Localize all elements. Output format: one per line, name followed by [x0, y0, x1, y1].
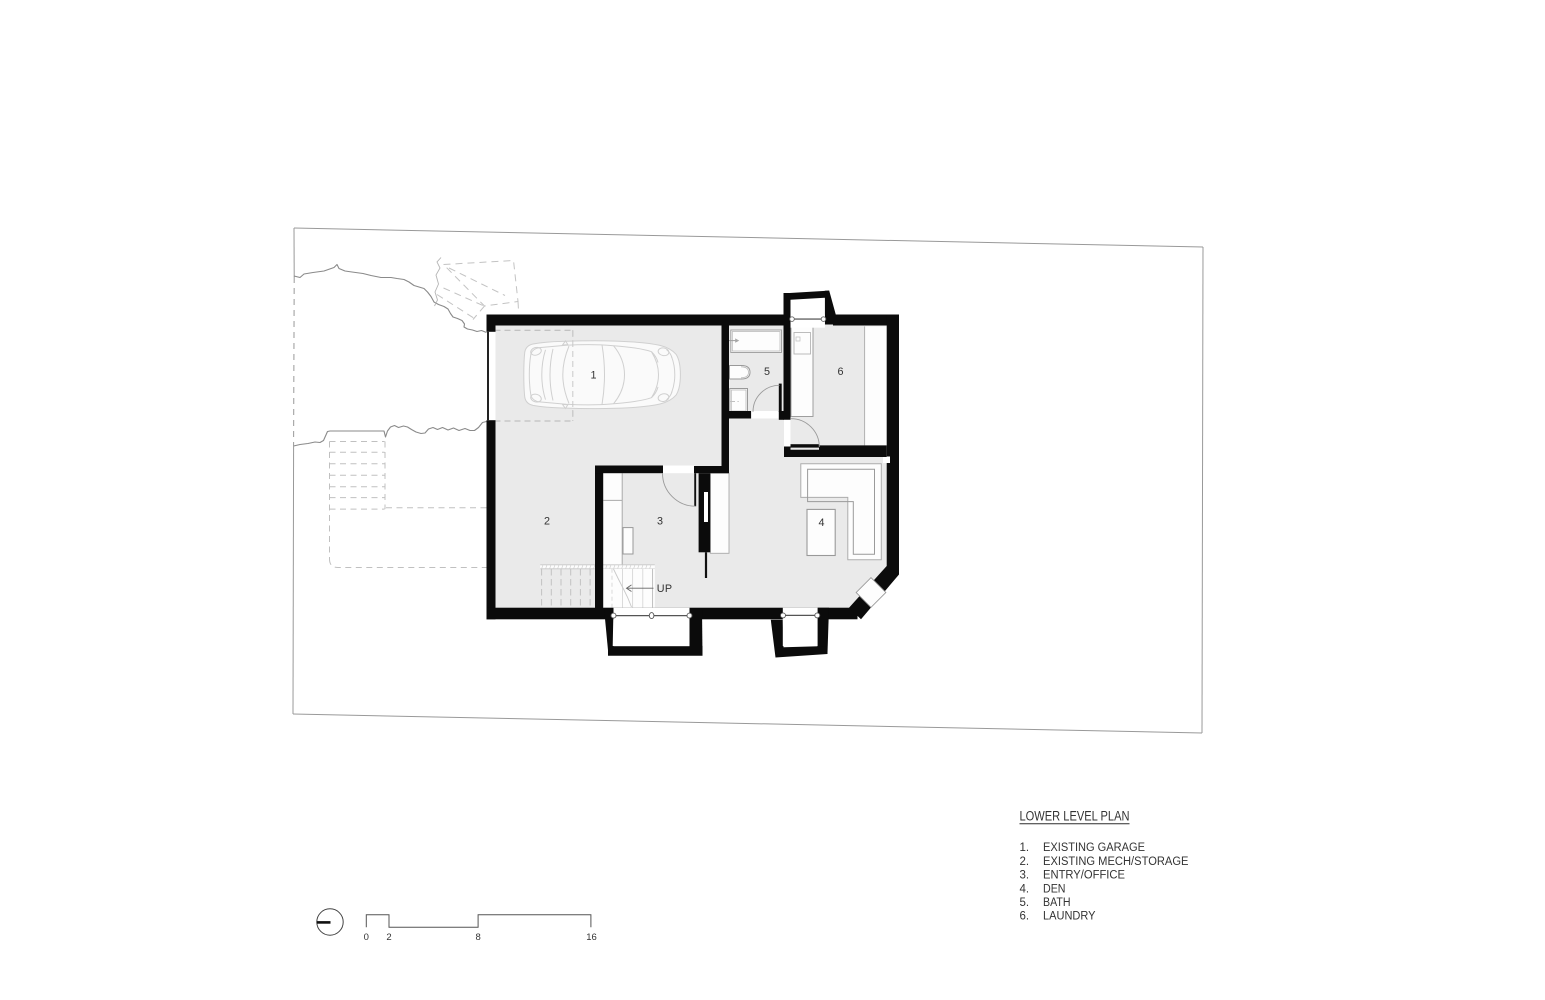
svg-text:ENTRY/OFFICE: ENTRY/OFFICE [1043, 870, 1125, 882]
svg-text:EXISTING MECH/STORAGE: EXISTING MECH/STORAGE [1043, 856, 1189, 868]
svg-text:3: 3 [657, 515, 663, 527]
svg-text:6.: 6. [1020, 911, 1030, 923]
svg-text:5.: 5. [1020, 897, 1030, 909]
svg-text:LAUNDRY: LAUNDRY [1043, 911, 1096, 923]
svg-text:8: 8 [475, 932, 480, 943]
svg-text:1.: 1. [1020, 842, 1030, 854]
svg-text:2: 2 [544, 515, 550, 527]
svg-text:4: 4 [818, 517, 824, 529]
svg-text:5: 5 [764, 366, 770, 378]
svg-text:BATH: BATH [1043, 897, 1071, 909]
svg-text:6: 6 [837, 366, 843, 378]
svg-text:2.: 2. [1020, 856, 1030, 868]
svg-text:16: 16 [586, 932, 597, 943]
svg-text:4.: 4. [1020, 883, 1030, 895]
svg-text:EXISTING GARAGE: EXISTING GARAGE [1043, 842, 1145, 854]
svg-text:DEN: DEN [1043, 883, 1066, 895]
svg-text:2: 2 [386, 932, 391, 943]
svg-text:3.: 3. [1020, 870, 1030, 882]
svg-text:0: 0 [364, 932, 369, 943]
svg-text:UP: UP [657, 583, 673, 595]
svg-text:1: 1 [590, 370, 596, 382]
svg-text:LOWER LEVEL PLAN: LOWER LEVEL PLAN [1020, 809, 1130, 824]
